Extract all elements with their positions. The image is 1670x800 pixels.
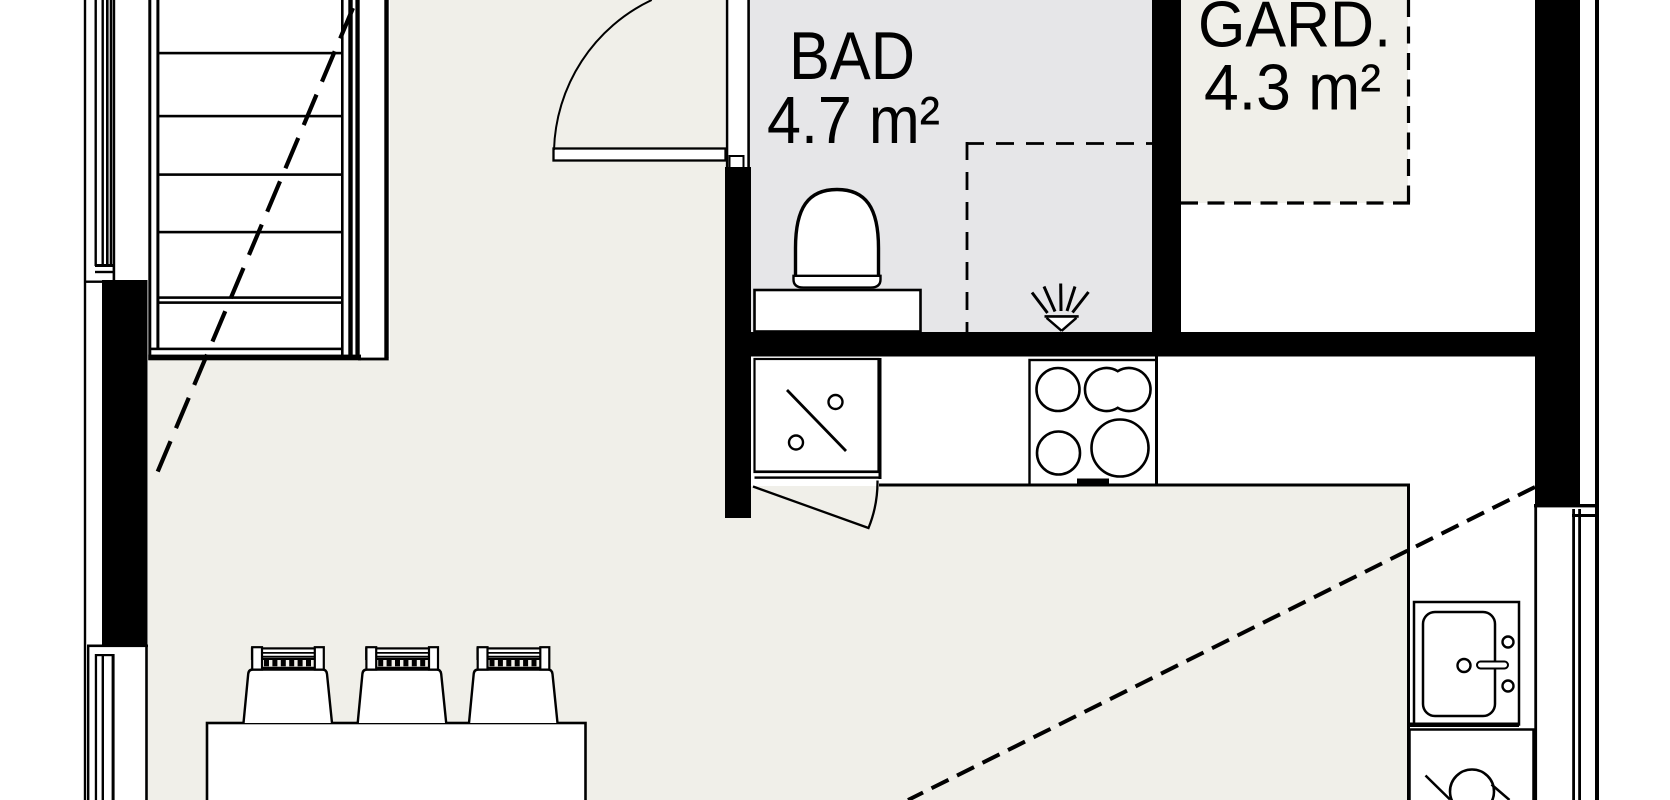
svg-text:4.7 m²: 4.7 m² — [767, 83, 940, 158]
svg-text:4.3 m²: 4.3 m² — [1204, 51, 1381, 124]
